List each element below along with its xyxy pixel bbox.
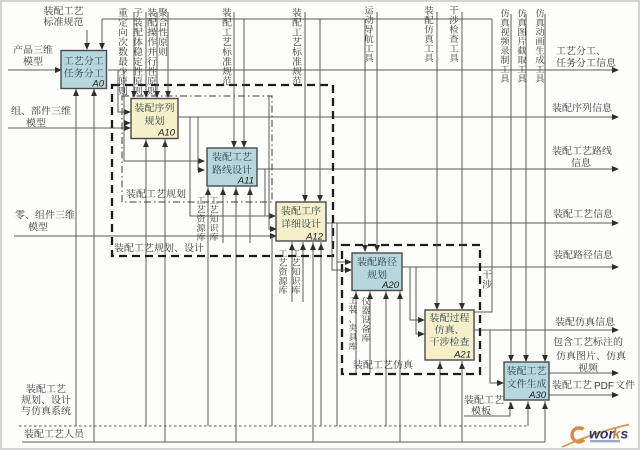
svg-text:A11: A11 <box>237 176 254 187</box>
svg-text:A0: A0 <box>91 79 104 90</box>
svg-text:PDF: PDF <box>594 381 614 392</box>
svg-text:A12: A12 <box>305 232 324 243</box>
svg-text:A10: A10 <box>157 128 176 139</box>
svg-text:wor: wor <box>589 426 615 442</box>
svg-text:s: s <box>621 426 629 442</box>
svg-text:A21: A21 <box>453 350 471 361</box>
svg-text:A20: A20 <box>381 280 400 291</box>
svg-text:A30: A30 <box>528 390 547 401</box>
